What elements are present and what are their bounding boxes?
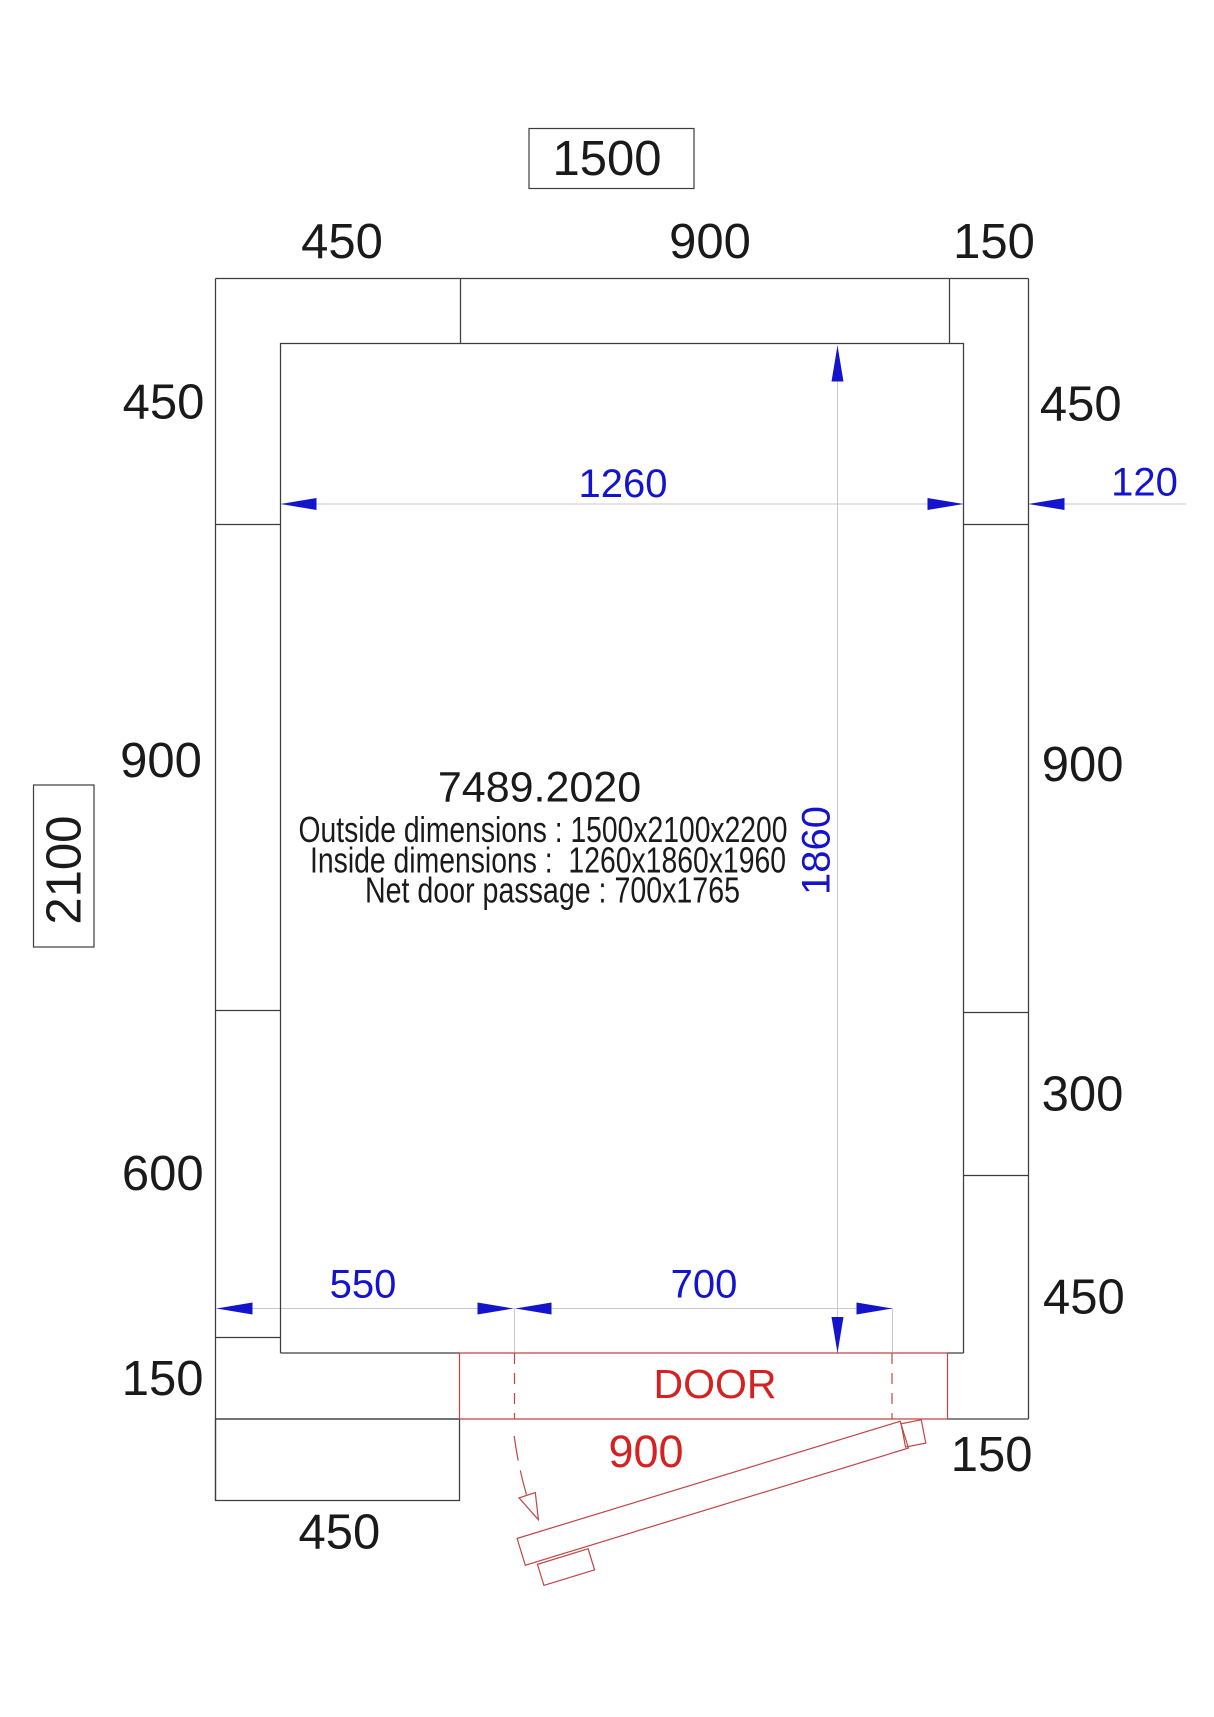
svg-text:900: 900 bbox=[608, 1426, 683, 1477]
svg-text:150: 150 bbox=[953, 215, 1035, 269]
svg-text:Net door passage : 700x1765: Net door passage : 700x1765 bbox=[365, 870, 740, 911]
svg-text:450: 450 bbox=[1043, 1270, 1125, 1324]
svg-text:150: 150 bbox=[122, 1352, 204, 1406]
svg-text:450: 450 bbox=[299, 1506, 381, 1560]
svg-text:900: 900 bbox=[669, 215, 751, 269]
svg-text:1500: 1500 bbox=[552, 132, 661, 186]
svg-text:1860: 1860 bbox=[795, 806, 839, 895]
svg-text:120: 120 bbox=[1111, 461, 1178, 505]
svg-text:900: 900 bbox=[1042, 738, 1124, 792]
svg-text:DOOR: DOOR bbox=[654, 1361, 777, 1407]
svg-text:600: 600 bbox=[122, 1147, 204, 1201]
svg-text:900: 900 bbox=[120, 734, 202, 788]
svg-text:300: 300 bbox=[1042, 1067, 1124, 1121]
svg-text:150: 150 bbox=[951, 1428, 1033, 1482]
svg-text:7489.2020: 7489.2020 bbox=[438, 764, 641, 812]
svg-text:450: 450 bbox=[301, 215, 383, 269]
svg-text:700: 700 bbox=[671, 1263, 738, 1307]
svg-text:1260: 1260 bbox=[579, 462, 668, 506]
svg-text:550: 550 bbox=[330, 1263, 397, 1307]
svg-text:450: 450 bbox=[1040, 377, 1122, 431]
svg-text:2100: 2100 bbox=[37, 816, 91, 925]
svg-text:450: 450 bbox=[123, 375, 205, 429]
